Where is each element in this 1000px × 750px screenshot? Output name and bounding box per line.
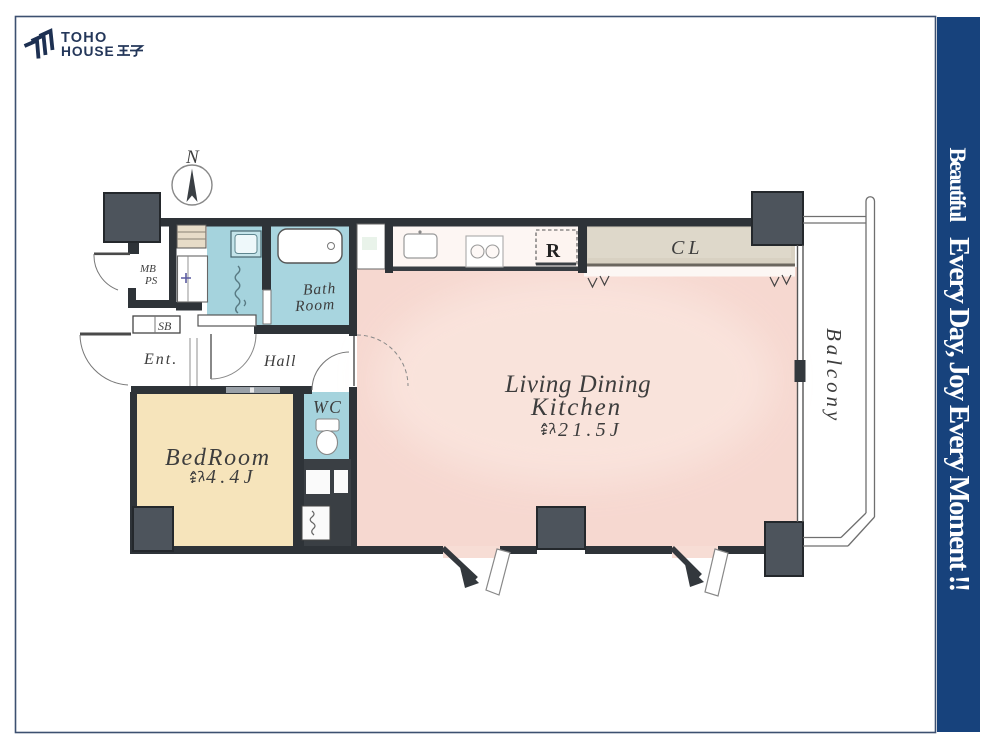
svg-text:SB: SB — [158, 319, 172, 333]
svg-text:HOUSE: HOUSE — [61, 44, 115, 59]
svg-text:MB: MB — [139, 263, 156, 275]
svg-text:CL: CL — [671, 237, 703, 259]
svg-text:Balcony: Balcony — [822, 328, 846, 424]
svg-text:Kitchen: Kitchen — [530, 394, 622, 421]
svg-text:Hall: Hall — [263, 353, 296, 370]
svg-text:4.4J: 4.4J — [206, 466, 257, 488]
svg-text:N: N — [185, 147, 200, 168]
svg-text:21.5J: 21.5J — [558, 419, 623, 441]
svg-text:Every Day, Joy Every Moment !!: Every Day, Joy Every Moment !! — [943, 237, 975, 591]
svg-text:Beautiful: Beautiful — [945, 148, 970, 222]
svg-text:Ent.: Ent. — [143, 351, 178, 368]
svg-text:Room: Room — [294, 296, 336, 315]
svg-text:PS: PS — [144, 275, 158, 287]
svg-text:WC: WC — [313, 397, 342, 417]
svg-text:R: R — [546, 241, 561, 262]
